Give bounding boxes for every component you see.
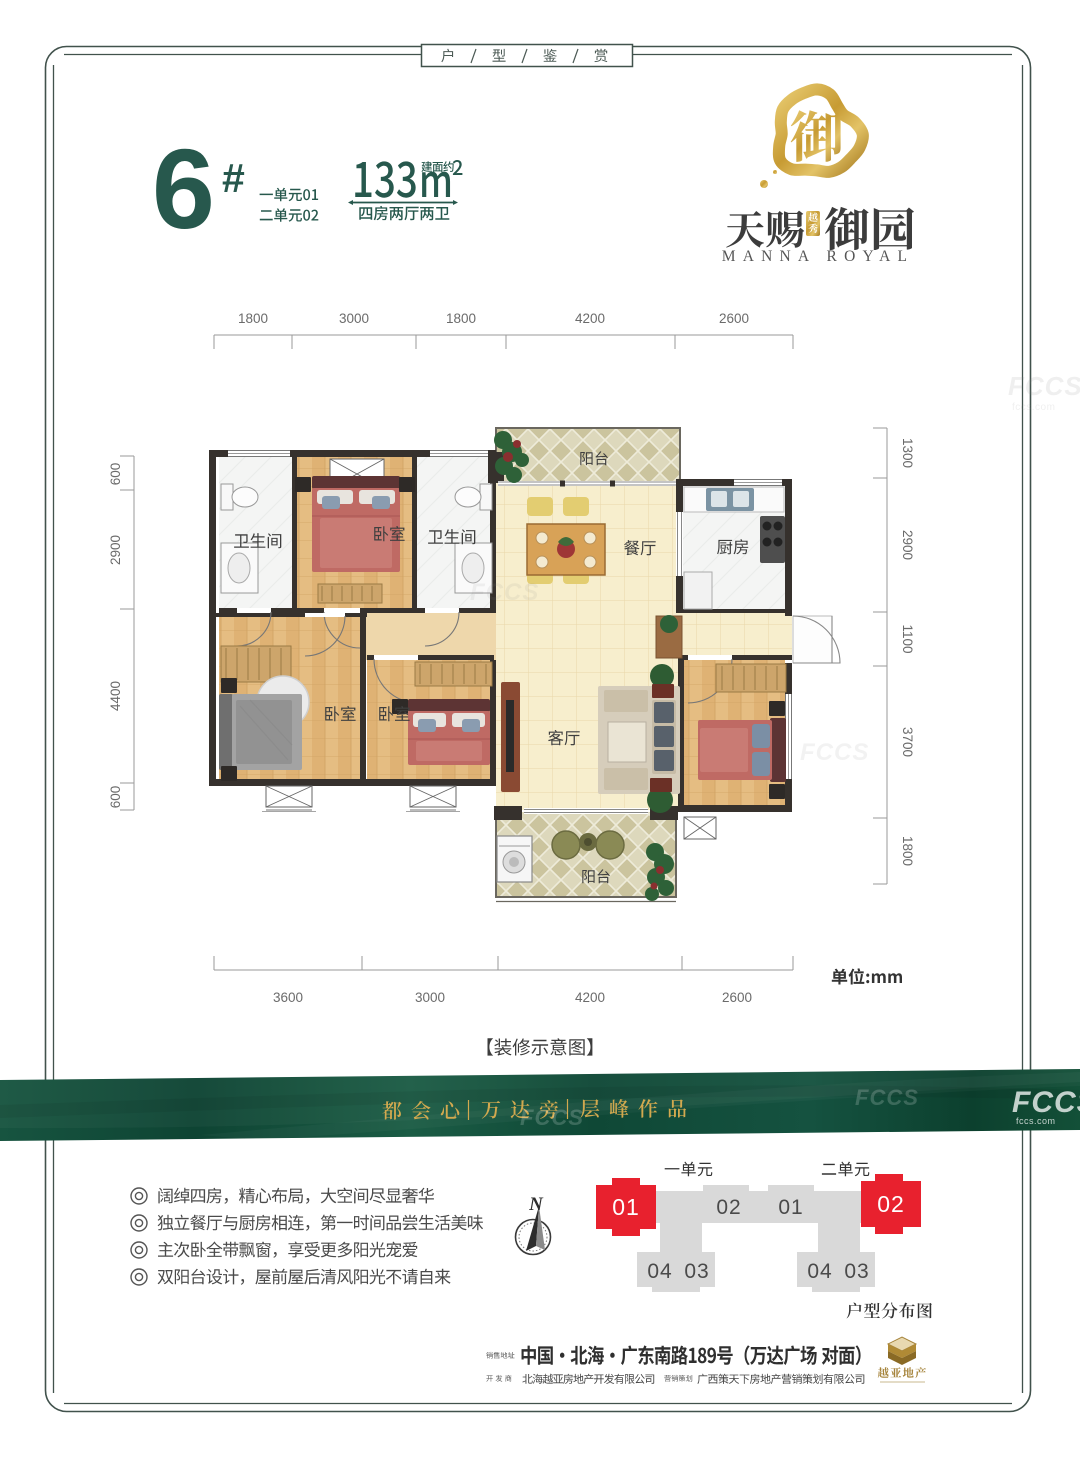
svg-text:3000: 3000: [339, 311, 369, 326]
svg-text:FCCS: FCCS: [1008, 371, 1080, 401]
svg-text:N: N: [528, 1194, 544, 1215]
svg-text:fccs.com: fccs.com: [1012, 402, 1055, 413]
svg-text:3700: 3700: [900, 727, 915, 757]
svg-text:FCCS: FCCS: [855, 1085, 919, 1110]
svg-text:04: 04: [807, 1260, 832, 1283]
svg-text:1800: 1800: [900, 836, 915, 866]
svg-text:2900: 2900: [108, 535, 123, 565]
svg-text:03: 03: [684, 1260, 709, 1283]
svg-text:3600: 3600: [273, 990, 303, 1005]
svg-text:FCCS: FCCS: [520, 1105, 584, 1130]
svg-text:600: 600: [108, 463, 123, 486]
svg-text:1800: 1800: [238, 311, 268, 326]
svg-text:fccs.com: fccs.com: [1016, 1116, 1056, 1126]
svg-text:2900: 2900: [900, 530, 915, 560]
svg-text:01: 01: [778, 1196, 803, 1219]
svg-text:1800: 1800: [446, 311, 476, 326]
svg-text:04: 04: [647, 1260, 672, 1283]
svg-text:MANNA ROYAL: MANNA ROYAL: [722, 248, 914, 265]
svg-text:1300: 1300: [900, 438, 915, 468]
svg-text:2600: 2600: [722, 990, 752, 1005]
svg-text:03: 03: [844, 1260, 869, 1283]
svg-text:4400: 4400: [108, 681, 123, 711]
svg-text:600: 600: [108, 786, 123, 809]
svg-text:FCCS: FCCS: [800, 739, 869, 766]
svg-text:FCCS: FCCS: [470, 579, 539, 606]
svg-text:#: #: [222, 155, 245, 201]
svg-text:3000: 3000: [415, 990, 445, 1005]
svg-text:FCCS: FCCS: [1012, 1086, 1080, 1119]
svg-text:4200: 4200: [575, 990, 605, 1005]
svg-text:1100: 1100: [900, 624, 915, 653]
svg-text:01: 01: [612, 1194, 640, 1220]
svg-text:02: 02: [877, 1191, 905, 1217]
svg-text:2600: 2600: [719, 311, 749, 326]
svg-text:02: 02: [716, 1196, 741, 1219]
svg-text:4200: 4200: [575, 311, 605, 326]
svg-text:6: 6: [152, 126, 215, 252]
